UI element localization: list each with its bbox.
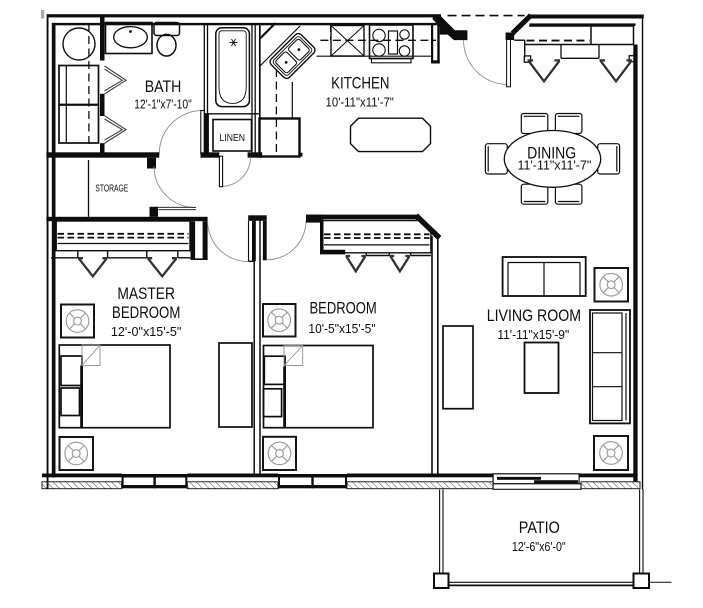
svg-text:10'-5"x15'-5": 10'-5"x15'-5" [308, 322, 375, 336]
svg-text:11'-11"x15'-9": 11'-11"x15'-9" [497, 328, 569, 342]
svg-text:BEDROOM: BEDROOM [310, 299, 377, 318]
svg-text:LINEN: LINEN [220, 133, 246, 144]
svg-text:MASTER: MASTER [117, 284, 175, 303]
svg-text:STORAGE: STORAGE [95, 183, 128, 194]
svg-text:BATH: BATH [145, 77, 182, 96]
svg-text:10'-11"x11'-7": 10'-11"x11'-7" [326, 96, 394, 110]
svg-text:BEDROOM: BEDROOM [112, 303, 180, 322]
svg-text:12'-6"x6'-0": 12'-6"x6'-0" [512, 540, 566, 554]
svg-text:KITCHEN: KITCHEN [331, 73, 389, 92]
svg-text:LIVING ROOM: LIVING ROOM [487, 306, 581, 325]
svg-text:11'-11"x11'-7": 11'-11"x11'-7" [518, 159, 592, 173]
svg-text:12'-1"x7'-10": 12'-1"x7'-10" [134, 98, 192, 112]
svg-text:PATIO: PATIO [519, 518, 560, 537]
svg-text:12'-0"x15'-5": 12'-0"x15'-5" [111, 325, 181, 339]
